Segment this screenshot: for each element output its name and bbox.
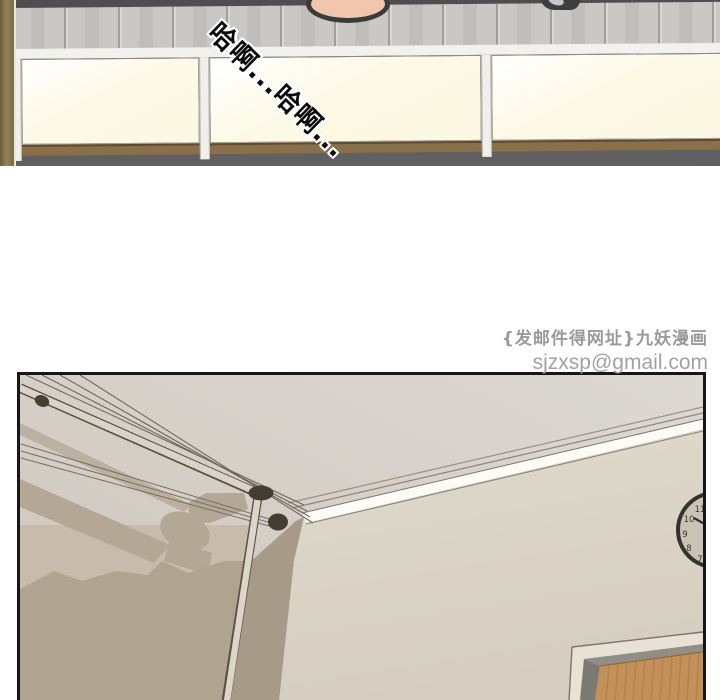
wire-knob [268, 514, 288, 531]
cabinet-row [12, 43, 720, 166]
room-scene: 11 10 9 8 7 [20, 375, 703, 700]
clock-numeral: 11 [695, 505, 703, 515]
cabinet-frame-post [199, 57, 210, 159]
cabinet-doors [12, 53, 720, 145]
left-wall-edge [0, 0, 16, 166]
clock-numeral: 10 [684, 515, 695, 525]
watermark-site-name: {发邮件得网址}九妖漫画 [502, 324, 708, 349]
clock-numeral: 8 [686, 544, 691, 554]
ceiling-mount [249, 486, 274, 501]
clock-numeral: 7 [697, 555, 702, 565]
clock-numeral: 9 [682, 530, 687, 540]
cabinet-frame-post [481, 55, 492, 157]
watermark-email: sjzxsp@gmail.com [502, 351, 708, 375]
cabinet-door-panel [21, 57, 200, 145]
webtoon-page: 哈啊...哈啊... {发邮件得网址}九妖漫画 sjzxsp@gmail.com [0, 0, 720, 700]
cabinet-door-panel [491, 53, 720, 141]
comic-panel-bottom: 11 10 9 8 7 [17, 372, 706, 700]
watermark: {发邮件得网址}九妖漫画 sjzxsp@gmail.com [502, 324, 708, 375]
comic-panel-top: 哈啊...哈啊... [0, 0, 720, 166]
